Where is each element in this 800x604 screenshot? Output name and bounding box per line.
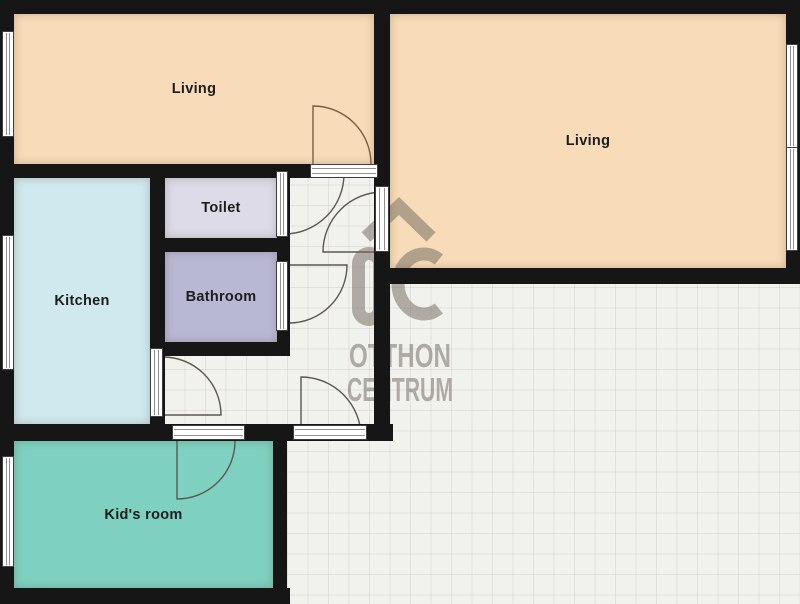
window-living-left: [2, 31, 14, 137]
door-swing-toilet: [284, 174, 344, 234]
room-toilet: Toilet: [165, 178, 277, 238]
watermark-line1: OTTHON: [349, 337, 451, 374]
door-frame-kitchen: [150, 348, 163, 417]
room-label-bathroom: Bathroom: [186, 289, 257, 305]
door-frame-bathroom: [276, 261, 288, 331]
room-label-living-left: Living: [172, 81, 217, 97]
door-swing-bathroom: [289, 265, 347, 323]
window-kids-room: [2, 456, 14, 567]
door-frame-entrance: [293, 425, 367, 440]
wall-kids-right: [273, 424, 287, 602]
door-frame-toilet: [276, 171, 288, 237]
room-bathroom: Bathroom: [165, 252, 277, 342]
room-label-kitchen: Kitchen: [54, 293, 109, 309]
wall-living-right-bottom: [374, 268, 800, 284]
room-living-left: Living: [14, 14, 374, 164]
door-frame-living-left: [310, 164, 378, 178]
window-living-right-upper: [786, 44, 798, 148]
window-kitchen: [2, 235, 14, 370]
door-frame-living-right: [375, 186, 389, 252]
wall-toilet-bathroom-divider: [150, 238, 290, 252]
wall-outer-bottom: [0, 588, 290, 604]
room-label-living-right: Living: [566, 133, 611, 149]
watermark-line2: CENTRUM: [347, 371, 453, 408]
room-living-right: Living: [390, 14, 786, 268]
door-frame-kids-room: [172, 425, 245, 440]
room-label-toilet: Toilet: [201, 200, 240, 216]
wall-bathroom-bottom: [150, 342, 290, 356]
room-label-kids: Kid's room: [104, 507, 182, 523]
floor-plan: Living Living Toilet Bathroom Kitchen Ki…: [0, 0, 800, 604]
window-living-right-lower: [786, 147, 798, 251]
door-swing-kitchen: [163, 357, 221, 415]
room-kids: Kid's room: [14, 441, 273, 588]
room-kitchen: Kitchen: [14, 178, 150, 424]
wall-outer-top: [0, 0, 800, 14]
